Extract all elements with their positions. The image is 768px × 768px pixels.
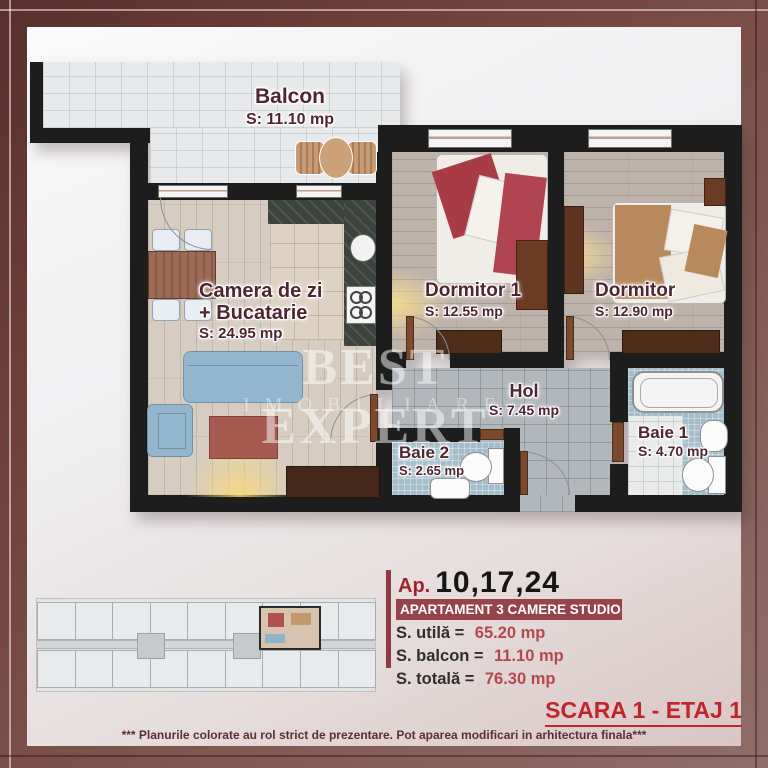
room-area: S: 4.70 mp <box>638 444 738 459</box>
area-row-value: 65.20 mp <box>475 624 546 642</box>
nightstand-2 <box>704 178 726 206</box>
room-label-baie2: Baie 2 S: 2.65 mp <box>399 444 499 478</box>
mini-stair-core-2 <box>233 633 261 659</box>
room-label-dormitor1: Dormitor 1 S: 12.55 mp <box>425 281 545 319</box>
mini-corridor <box>37 640 375 649</box>
armchair <box>147 404 193 457</box>
bathtub <box>632 371 724 413</box>
area-row-value: 76.30 mp <box>485 670 556 688</box>
stove <box>346 286 376 324</box>
room-label-baie1: Baie 1 S: 4.70 mp <box>638 424 738 459</box>
area-row: S. totală = 76.30 mp <box>396 670 646 693</box>
dining-chair <box>152 299 180 321</box>
mini-row-bottom <box>37 650 375 688</box>
room-name: Dormitor 1 <box>425 281 545 302</box>
wall-between-bedrooms <box>548 152 564 368</box>
ap-label: Ap. <box>398 575 430 598</box>
scara-etaj-text: SCARA 1 - ETAJ 1 <box>545 697 742 727</box>
room-label-hol: Hol S: 7.45 mp <box>470 382 578 419</box>
wall-under-bedrooms-c <box>610 352 742 368</box>
area-row: S. utilă = 65.20 mp <box>396 624 646 647</box>
room-label-balcon: Balcon S: 11.10 mp <box>215 86 365 128</box>
room-name: Baie 2 <box>399 444 499 462</box>
wall-balcony-left <box>30 62 43 130</box>
entrance-threshold <box>518 495 575 512</box>
living-window-2 <box>296 185 342 198</box>
wall-bottom-right <box>575 495 742 512</box>
room-name: Hol <box>470 382 578 401</box>
room-label-living: Camera de zi + Bucatarie S: 24.95 mp <box>199 281 331 342</box>
room-name: Camera de zi + Bucatarie <box>199 281 331 324</box>
room-area: S: 12.90 mp <box>595 304 715 319</box>
mini-row-top <box>37 602 375 640</box>
room-name: Baie 1 <box>638 424 738 442</box>
door-leaf-bathroom1 <box>612 422 624 462</box>
bedroom1-window <box>428 129 512 148</box>
room-name: Dormitor <box>595 281 715 302</box>
stair-floor-title: SCARA 1 - ETAJ 1 <box>430 697 742 727</box>
room-area: S: 11.10 mp <box>215 111 365 128</box>
room-name: Balcon <box>215 86 365 109</box>
sink-2 <box>430 478 470 499</box>
tv-cabinet <box>286 466 380 498</box>
ap-numbers: 10,17,24 <box>435 566 560 600</box>
wall-bathroom1-upper <box>610 368 628 422</box>
toilet-1-bowl <box>682 458 714 492</box>
kitchen-sink <box>350 234 376 262</box>
wall-bathroom1-lower <box>610 464 628 512</box>
door-leaf-entrance <box>520 451 528 495</box>
area-row-label: S. balcon = <box>396 647 484 665</box>
bedroom2-window <box>588 129 672 148</box>
apartment-type-bar: APARTAMENT 3 CAMERE STUDIO <box>396 599 622 620</box>
balcony-table <box>319 137 353 179</box>
dresser-2 <box>622 330 720 354</box>
room-area: S: 7.45 mp <box>470 403 578 418</box>
info-panel-rule <box>386 570 391 668</box>
door-leaf-bedroom2 <box>566 316 574 360</box>
kitchen-counter-right <box>344 200 378 346</box>
room-label-dormitor: Dormitor S: 12.90 mp <box>595 281 715 319</box>
mini-stair-core-1 <box>137 633 165 659</box>
disclaimer-text: *** Planurile colorate au rol strict de … <box>27 728 741 742</box>
area-rows: S. utilă = 65.20 mp S. balcon = 11.10 mp… <box>396 624 646 693</box>
area-row-label: S. totală = <box>396 670 474 688</box>
wardrobe-2 <box>564 206 584 294</box>
apartment-number-line: Ap. 10,17,24 <box>398 566 698 598</box>
room-area: S: 12.55 mp <box>425 304 545 319</box>
building-overview-plan <box>36 598 376 692</box>
area-row-value: 11.10 mp <box>494 647 564 665</box>
room-area: S: 2.65 mp <box>399 464 499 478</box>
room-area: S: 24.95 mp <box>199 326 331 342</box>
living-window-1 <box>158 185 228 198</box>
area-row: S. balcon = 11.10 mp <box>396 647 646 670</box>
wall-left <box>130 128 148 512</box>
mini-highlighted-apartment <box>259 606 321 650</box>
flyer-page: { "plan": { "watermark": { "line1": "BES… <box>0 0 768 768</box>
area-row-label: S. utilă = <box>396 624 464 642</box>
